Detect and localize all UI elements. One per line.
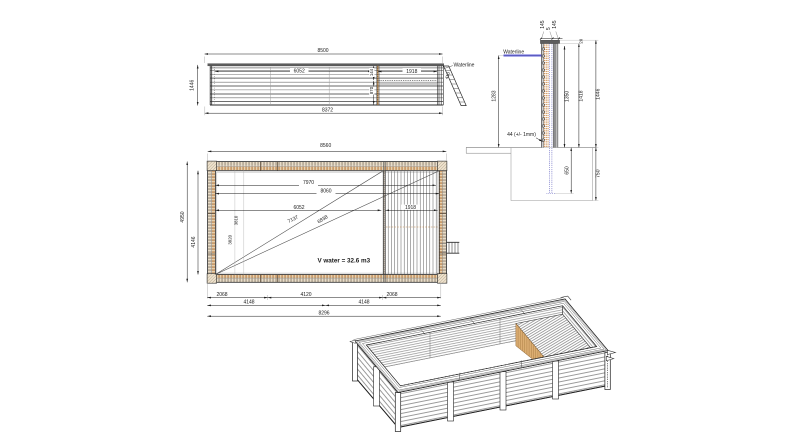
svg-text:4148: 4148: [358, 300, 369, 306]
svg-text:44 (+/- 1mm): 44 (+/- 1mm): [507, 132, 536, 138]
svg-text:4148: 4148: [243, 300, 254, 306]
svg-text:3820: 3820: [227, 234, 232, 244]
svg-text:Waterline: Waterline: [454, 63, 475, 69]
svg-text:4950: 4950: [180, 211, 186, 222]
svg-text:1918: 1918: [405, 205, 416, 211]
svg-text:8296: 8296: [318, 310, 329, 316]
svg-text:6052: 6052: [294, 69, 305, 75]
svg-text:870: 870: [369, 86, 374, 94]
svg-text:8500: 8500: [317, 48, 328, 54]
svg-text:8372: 8372: [322, 108, 333, 114]
svg-text:1350: 1350: [564, 91, 570, 102]
svg-text:4146: 4146: [191, 236, 197, 247]
svg-text:7970: 7970: [303, 180, 314, 186]
svg-text:2068: 2068: [216, 292, 227, 298]
svg-text:8560: 8560: [320, 143, 331, 149]
svg-text:2068: 2068: [386, 292, 397, 298]
svg-text:3810: 3810: [234, 215, 239, 225]
svg-text:1446: 1446: [190, 80, 196, 91]
svg-text:1283: 1283: [492, 90, 498, 101]
svg-text:1418: 1418: [579, 90, 585, 101]
svg-text:4120: 4120: [300, 292, 311, 298]
svg-text:1446: 1446: [596, 88, 602, 99]
svg-text:28: 28: [579, 38, 584, 43]
svg-text:V water = 32.6 m3: V water = 32.6 m3: [317, 257, 370, 264]
svg-text:650: 650: [565, 166, 571, 175]
svg-text:144: 144: [369, 68, 374, 76]
svg-text:145: 145: [552, 20, 558, 29]
svg-text:6052: 6052: [293, 205, 304, 211]
svg-text:750: 750: [596, 169, 602, 178]
svg-text:8060: 8060: [320, 189, 331, 195]
svg-text:1918: 1918: [406, 69, 417, 75]
